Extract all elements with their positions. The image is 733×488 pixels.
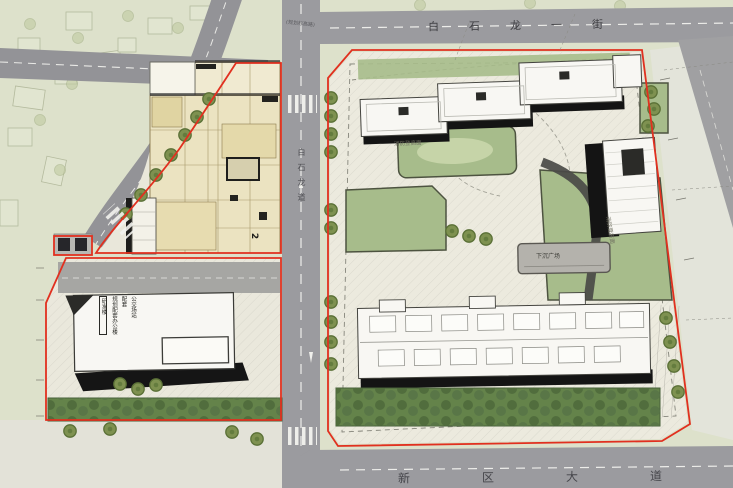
office-tower [585,137,662,238]
rd-building-label-4: 公交场站 [130,296,136,335]
fire-lane-label-top: 消防登高面 [394,138,422,147]
street-name-vertical: 白石龙道 [296,148,307,208]
street-name-top: 白石龙一街 [428,16,633,35]
vertical-road [282,0,320,488]
green-buffer-left [48,398,282,421]
street-name-bottom: 新区大道 [398,467,733,487]
rd-building [65,292,249,391]
bottom-slab-building [357,291,653,388]
rd-building-labels: 研发楼 规划配套办公楼 配套 公交场站 [99,296,135,335]
site-plan-graphic [0,0,733,488]
substation-boxes [54,234,92,255]
rd-building-label-2: 规划配套办公楼 [111,296,117,335]
green-buffer-right [336,388,660,426]
sunken-plaza-label: 下沉广场 [536,251,560,260]
internal-driveway [58,262,280,293]
site-plan: 白石龙一街 新区大道 白石龙道 (规划标高路) 下沉广场 消防登高面 消防登高面… [0,0,733,488]
rd-building-label-1: 研发楼 [99,296,107,335]
rd-building-label-3: 配套 [120,296,126,335]
block-number-marker: 2 [249,233,259,239]
